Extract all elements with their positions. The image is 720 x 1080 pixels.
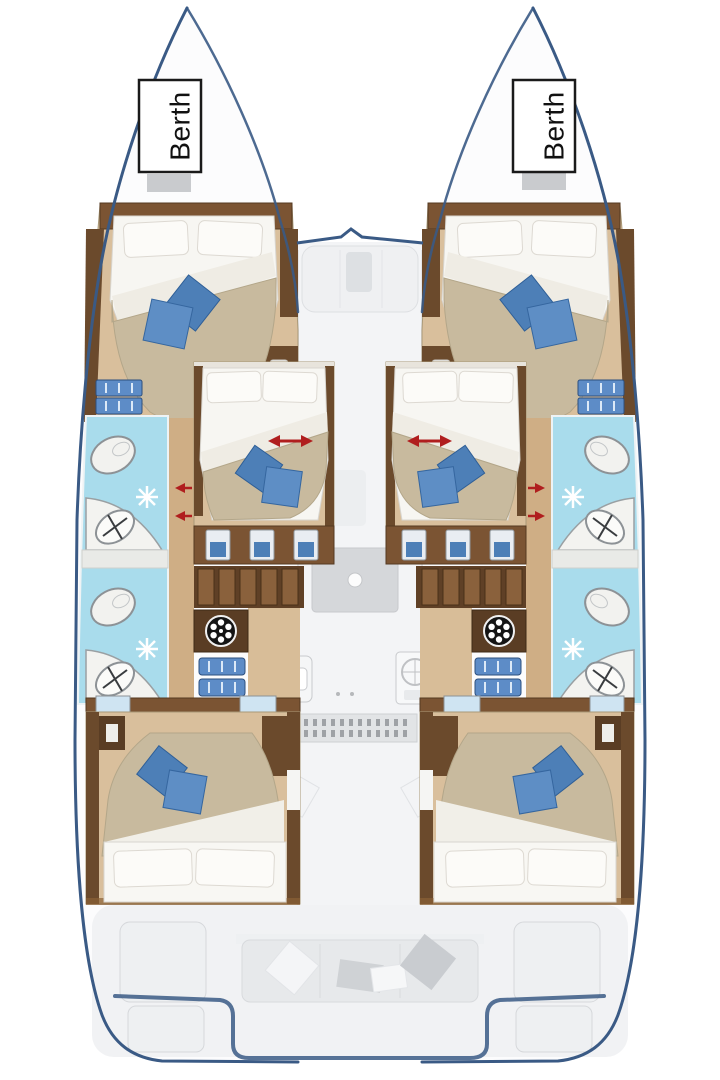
berth-label-text: Berth [539, 91, 570, 160]
hatch-window [96, 696, 130, 712]
stair-tread [282, 569, 298, 605]
stair-tread [240, 569, 256, 605]
seat-cushion [346, 252, 372, 292]
aft-cabin [86, 696, 300, 905]
blue-pillow [143, 299, 193, 349]
stair-tread [261, 569, 277, 605]
cabinet-door [106, 724, 118, 742]
hull-stairs [194, 566, 304, 608]
locker-contents [298, 542, 314, 557]
platform-starboard-low [516, 1006, 592, 1052]
forward-crossbeam-line [297, 229, 423, 243]
starboard-hull-rooms [386, 203, 642, 905]
berth-block [147, 174, 191, 192]
cabin-door-gap [287, 770, 300, 810]
corridor-floor-aft [248, 606, 300, 708]
hatch-window [240, 696, 276, 712]
double-bed [102, 733, 286, 902]
panel-base [299, 714, 417, 742]
foredeck-seat [302, 246, 418, 312]
locker-contents [254, 542, 270, 557]
bed-pillow [123, 220, 189, 257]
deck-dot [336, 692, 340, 696]
locker-contents [210, 542, 226, 557]
bathroom-block [78, 416, 168, 704]
stair-tread [219, 569, 235, 605]
platform-port-low [128, 1006, 204, 1052]
starboard-forepeak-berth-label: Berth [513, 80, 575, 190]
aft-cockpit-bench [236, 934, 484, 1002]
nav-instrument-panel [299, 714, 417, 742]
cabin-wall-inboard [280, 229, 298, 317]
cabin-wall-outboard [86, 712, 99, 904]
bed-pillow [113, 849, 192, 888]
double-bed [200, 368, 328, 520]
platform-starboard [514, 922, 600, 1002]
stair-tread [198, 569, 214, 605]
table-pedestal [348, 573, 362, 587]
deck-dot [350, 692, 354, 696]
bed-pillow [262, 371, 317, 403]
washing-machine-icon [194, 610, 248, 652]
deck-plan-page: Berth Berth [0, 0, 720, 1080]
bed-pillow [206, 371, 261, 403]
catamaran-deck-plan: Berth Berth [0, 0, 720, 1080]
port-hull-rooms [78, 203, 334, 905]
shower-starburst-icon [136, 486, 158, 508]
locker-row [194, 526, 334, 564]
bathroom-divider-counter [82, 550, 168, 568]
white-pillow [370, 964, 407, 992]
blue-pillow [262, 467, 303, 508]
platform-port [120, 922, 206, 1002]
berth-label-text: Berth [165, 91, 196, 160]
blue-pillow [163, 770, 207, 814]
berth-block [522, 172, 566, 190]
corridor-floor [166, 418, 194, 708]
bed-pillow [195, 849, 274, 888]
bed-pillow [197, 220, 263, 257]
